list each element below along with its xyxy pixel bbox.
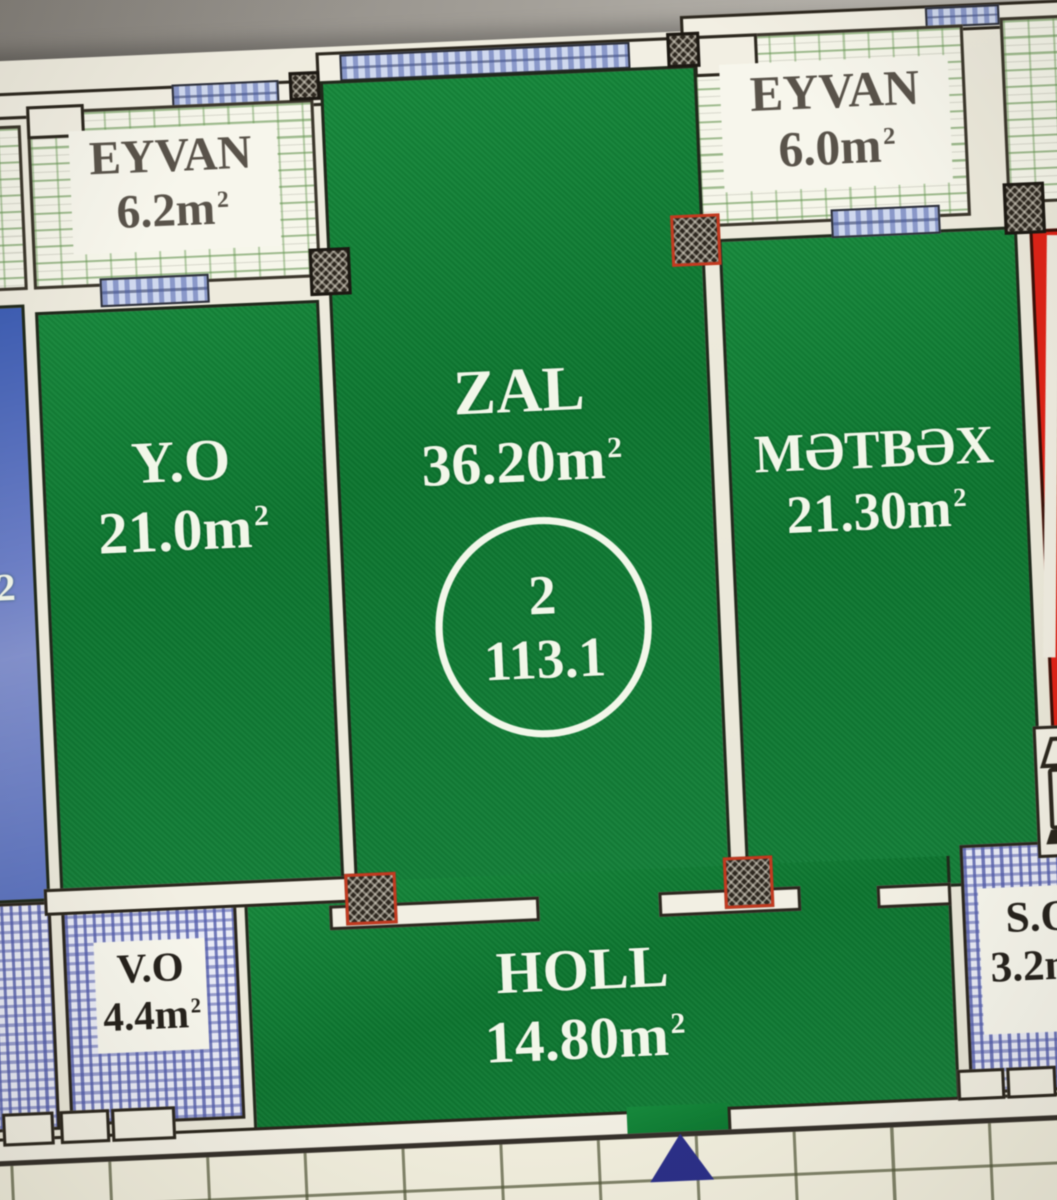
room-name: V.O <box>116 943 185 993</box>
room-name: EYVAN <box>88 126 253 188</box>
facade-symbol <box>111 1106 176 1142</box>
facade-symbol <box>1006 1066 1057 1099</box>
matbex-label: MƏTBƏX 21.30m2 <box>727 414 1025 550</box>
room-name: S.Q <box>1004 891 1057 944</box>
room-area: 3.2m2 <box>989 940 1057 994</box>
shaft-symbol-1 <box>1040 735 1057 768</box>
column-zal-top-left <box>288 71 320 101</box>
room-name: ZAL <box>452 352 586 431</box>
holl-label: HOLL 14.80m2 <box>411 928 757 1080</box>
yo-label: Y.O 21.0m2 <box>45 422 319 571</box>
facade-symbol <box>60 1109 111 1144</box>
room-area: 4.4m2 <box>102 990 202 1042</box>
sq-label: S.Q 3.2m2 <box>972 889 1057 994</box>
eyvan-right-label: EYVAN 6.0m2 <box>695 57 978 183</box>
floorplan-photo: 2 <box>0 0 1057 1200</box>
shaft-symbol-3 <box>1046 828 1057 844</box>
room-yo <box>35 300 344 895</box>
wall-stub-matbex-sq <box>877 883 952 909</box>
column-zal-eyvan-matbex <box>670 213 722 267</box>
facade-symbol <box>957 1068 1006 1101</box>
room-name: MƏTBƏX <box>753 415 995 487</box>
room-area: 14.80m2 <box>483 1000 687 1077</box>
column-eyvan-left-junction <box>309 247 352 296</box>
column-matbex-top-right <box>1003 182 1046 235</box>
column-zal-opening-right <box>723 855 775 909</box>
room-name: HOLL <box>495 932 670 1008</box>
room-area: 21.30m2 <box>785 478 968 547</box>
neighbor-unit-blue-wetroom <box>0 901 60 1136</box>
column-zal-opening-left <box>344 872 398 926</box>
unit-number: 2 <box>527 563 558 628</box>
neighbor-balcony-top-right <box>999 11 1057 204</box>
room-area: 6.0m2 <box>777 117 897 179</box>
plan-scene: 2 <box>0 0 1057 1200</box>
room-name: Y.O <box>130 425 232 498</box>
window-eyvan-right-to-matbex <box>831 205 941 239</box>
room-area: 36.20m2 <box>420 424 624 501</box>
room-area: 21.0m2 <box>97 492 271 568</box>
vo-label: V.O 4.4m2 <box>73 941 229 1042</box>
window-eyvan-left-to-yo <box>99 274 209 308</box>
eyvan-left-label: EYVAN 6.2m2 <box>35 123 307 244</box>
room-area: 6.2m2 <box>115 181 230 240</box>
room-matbex <box>718 226 1045 896</box>
entrance-arrow-icon <box>648 1132 714 1182</box>
facade-symbol <box>2 1111 55 1146</box>
unit-total-area: 113.1 <box>483 625 608 694</box>
neighbor-area-fragment: 2 <box>0 565 29 612</box>
zal-label: ZAL 36.20m2 <box>342 347 698 504</box>
shaft-symbol-2 <box>1048 766 1057 829</box>
room-name: EYVAN <box>749 59 921 123</box>
column-eyvan-right-top-left <box>666 32 700 68</box>
